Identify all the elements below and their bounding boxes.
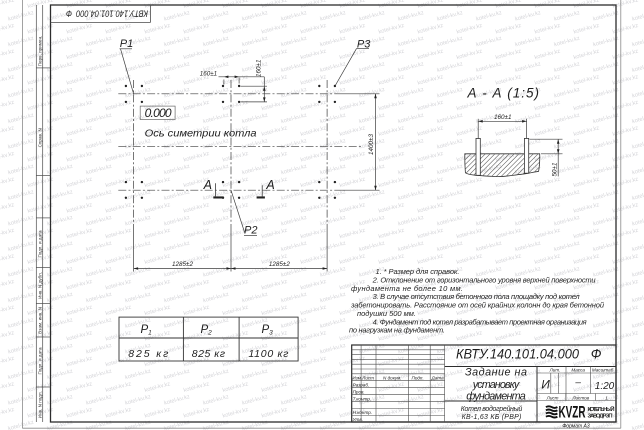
svg-text:Лит.: Лит. xyxy=(549,367,561,372)
svg-text:P2: P2 xyxy=(244,225,257,237)
svg-text:Подп. и дата: Подп. и дата xyxy=(37,347,42,375)
svg-text:Т.контр.: Т.контр. xyxy=(353,396,372,401)
svg-text:Дата: Дата xyxy=(431,375,445,380)
svg-text:N докум.: N докум. xyxy=(383,375,402,380)
svg-text:фундамента: фундамента xyxy=(466,390,526,402)
svg-text:Масса: Масса xyxy=(571,367,585,372)
svg-text:0.000: 0.000 xyxy=(145,106,172,120)
svg-text:Р1: Р1 xyxy=(141,324,153,337)
svg-text:Пров.: Пров. xyxy=(353,389,365,394)
svg-text:Ось симетрии котла: Ось симетрии котла xyxy=(145,129,258,140)
svg-text:1285±2: 1285±2 xyxy=(269,261,290,268)
svg-text:Р3: Р3 xyxy=(262,324,274,337)
svg-text:Формат А3: Формат А3 xyxy=(562,423,590,429)
svg-text:Изм.Лист: Изм.Лист xyxy=(352,375,374,380)
svg-text:160±1: 160±1 xyxy=(256,60,263,77)
svg-text:Котел водогрейный: Котел водогрейный xyxy=(461,405,523,413)
svg-text:КВТУ.140.101.04.000: КВТУ.140.101.04.000 xyxy=(456,346,579,361)
svg-text:КВ-1,63 КБ (РВР): КВ-1,63 КБ (РВР) xyxy=(462,414,522,421)
svg-text:Н.контр.: Н.контр. xyxy=(353,410,372,415)
svg-text:Масштаб: Масштаб xyxy=(592,367,614,372)
svg-text:Лист: Лист xyxy=(546,395,559,400)
svg-text:1: 1 xyxy=(605,395,608,400)
svg-text:Утв.: Утв. xyxy=(353,417,363,422)
svg-text:А: А xyxy=(203,178,212,192)
svg-text:Инв. N дубл.: Инв. N дубл. xyxy=(37,272,42,299)
svg-text:160±1: 160±1 xyxy=(494,114,511,121)
svg-text:КОТЕЛЬНЫЙ: КОТЕЛЬНЫЙ xyxy=(588,405,615,413)
svg-text:825 кг: 825 кг xyxy=(192,348,225,360)
svg-text:1400±3: 1400±3 xyxy=(368,134,375,155)
svg-text:по нагрузкам на фундамент.: по нагрузкам на фундамент. xyxy=(349,326,445,335)
svg-text:1:20: 1:20 xyxy=(595,381,615,392)
svg-text:Инв. N подл.: Инв. N подл. xyxy=(37,391,42,418)
svg-text:160±1: 160±1 xyxy=(200,70,217,77)
svg-text:Листов: Листов xyxy=(571,395,589,400)
svg-text:установку: установку xyxy=(472,379,520,391)
svg-text:Взам. инв. N: Взам. инв. N xyxy=(37,307,42,334)
svg-text:Разраб.: Разраб. xyxy=(353,382,370,387)
svg-text:А: А xyxy=(265,178,274,192)
svg-text:А - А (1:5): А - А (1:5) xyxy=(467,86,540,101)
svg-text:Ф: Ф xyxy=(591,346,602,361)
svg-text:Перв. примен.: Перв. примен. xyxy=(37,36,42,67)
svg-text:1100 кг: 1100 кг xyxy=(248,348,288,360)
svg-text:1285±2: 1285±2 xyxy=(172,261,193,268)
svg-text:Задание на: Задание на xyxy=(465,366,527,378)
svg-text:Подп. и дата: Подп. и дата xyxy=(37,230,42,258)
svg-text:50±1: 50±1 xyxy=(552,163,559,177)
svg-text:P1: P1 xyxy=(120,38,133,50)
svg-text:И: И xyxy=(541,378,550,392)
svg-text:KVZR: KVZR xyxy=(559,403,586,421)
svg-text:Справ. N: Справ. N xyxy=(37,128,42,147)
svg-text:–: – xyxy=(574,378,581,389)
svg-text:ЗАВОД РЭП: ЗАВОД РЭП xyxy=(588,414,613,420)
svg-text:КВТУ.140.101.04.000 Ф: КВТУ.140.101.04.000 Ф xyxy=(66,9,148,19)
svg-text:Подп.: Подп. xyxy=(412,375,424,380)
